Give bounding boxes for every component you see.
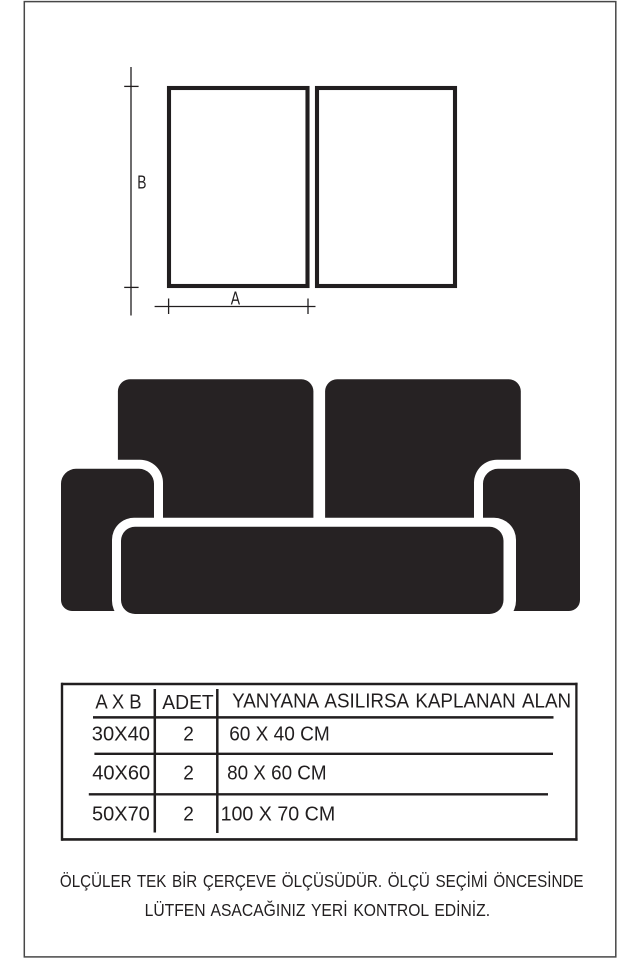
svg-text:A X B: A X B [95,692,141,714]
svg-text:2: 2 [183,763,194,785]
svg-text:100 X 70 CM: 100 X 70 CM [221,803,336,825]
svg-text:A: A [231,287,241,308]
svg-text:B: B [137,173,146,193]
svg-text:ÖLÇÜLER TEK BİR ÇERÇEVE ÖLÇÜSÜ: ÖLÇÜLER TEK BİR ÇERÇEVE ÖLÇÜSÜDÜR. ÖLÇÜ … [60,871,584,891]
svg-text:40X60: 40X60 [92,763,150,785]
svg-text:60 X 40 CM: 60 X 40 CM [229,723,330,745]
svg-text:80 X 60 CM: 80 X 60 CM [227,763,327,785]
svg-text:YANYANA ASILIRSA KAPLANAN ALAN: YANYANA ASILIRSA KAPLANAN ALAN [232,691,571,713]
svg-text:ADET: ADET [162,692,213,714]
svg-text:2: 2 [183,803,194,825]
svg-text:2: 2 [183,723,194,745]
svg-text:30X40: 30X40 [92,723,150,745]
svg-text:50X70: 50X70 [92,803,150,825]
svg-text:LÜTFEN ASACAĞINIZ YERİ KONTROL: LÜTFEN ASACAĞINIZ YERİ KONTROL EDİNİZ. [145,900,491,920]
